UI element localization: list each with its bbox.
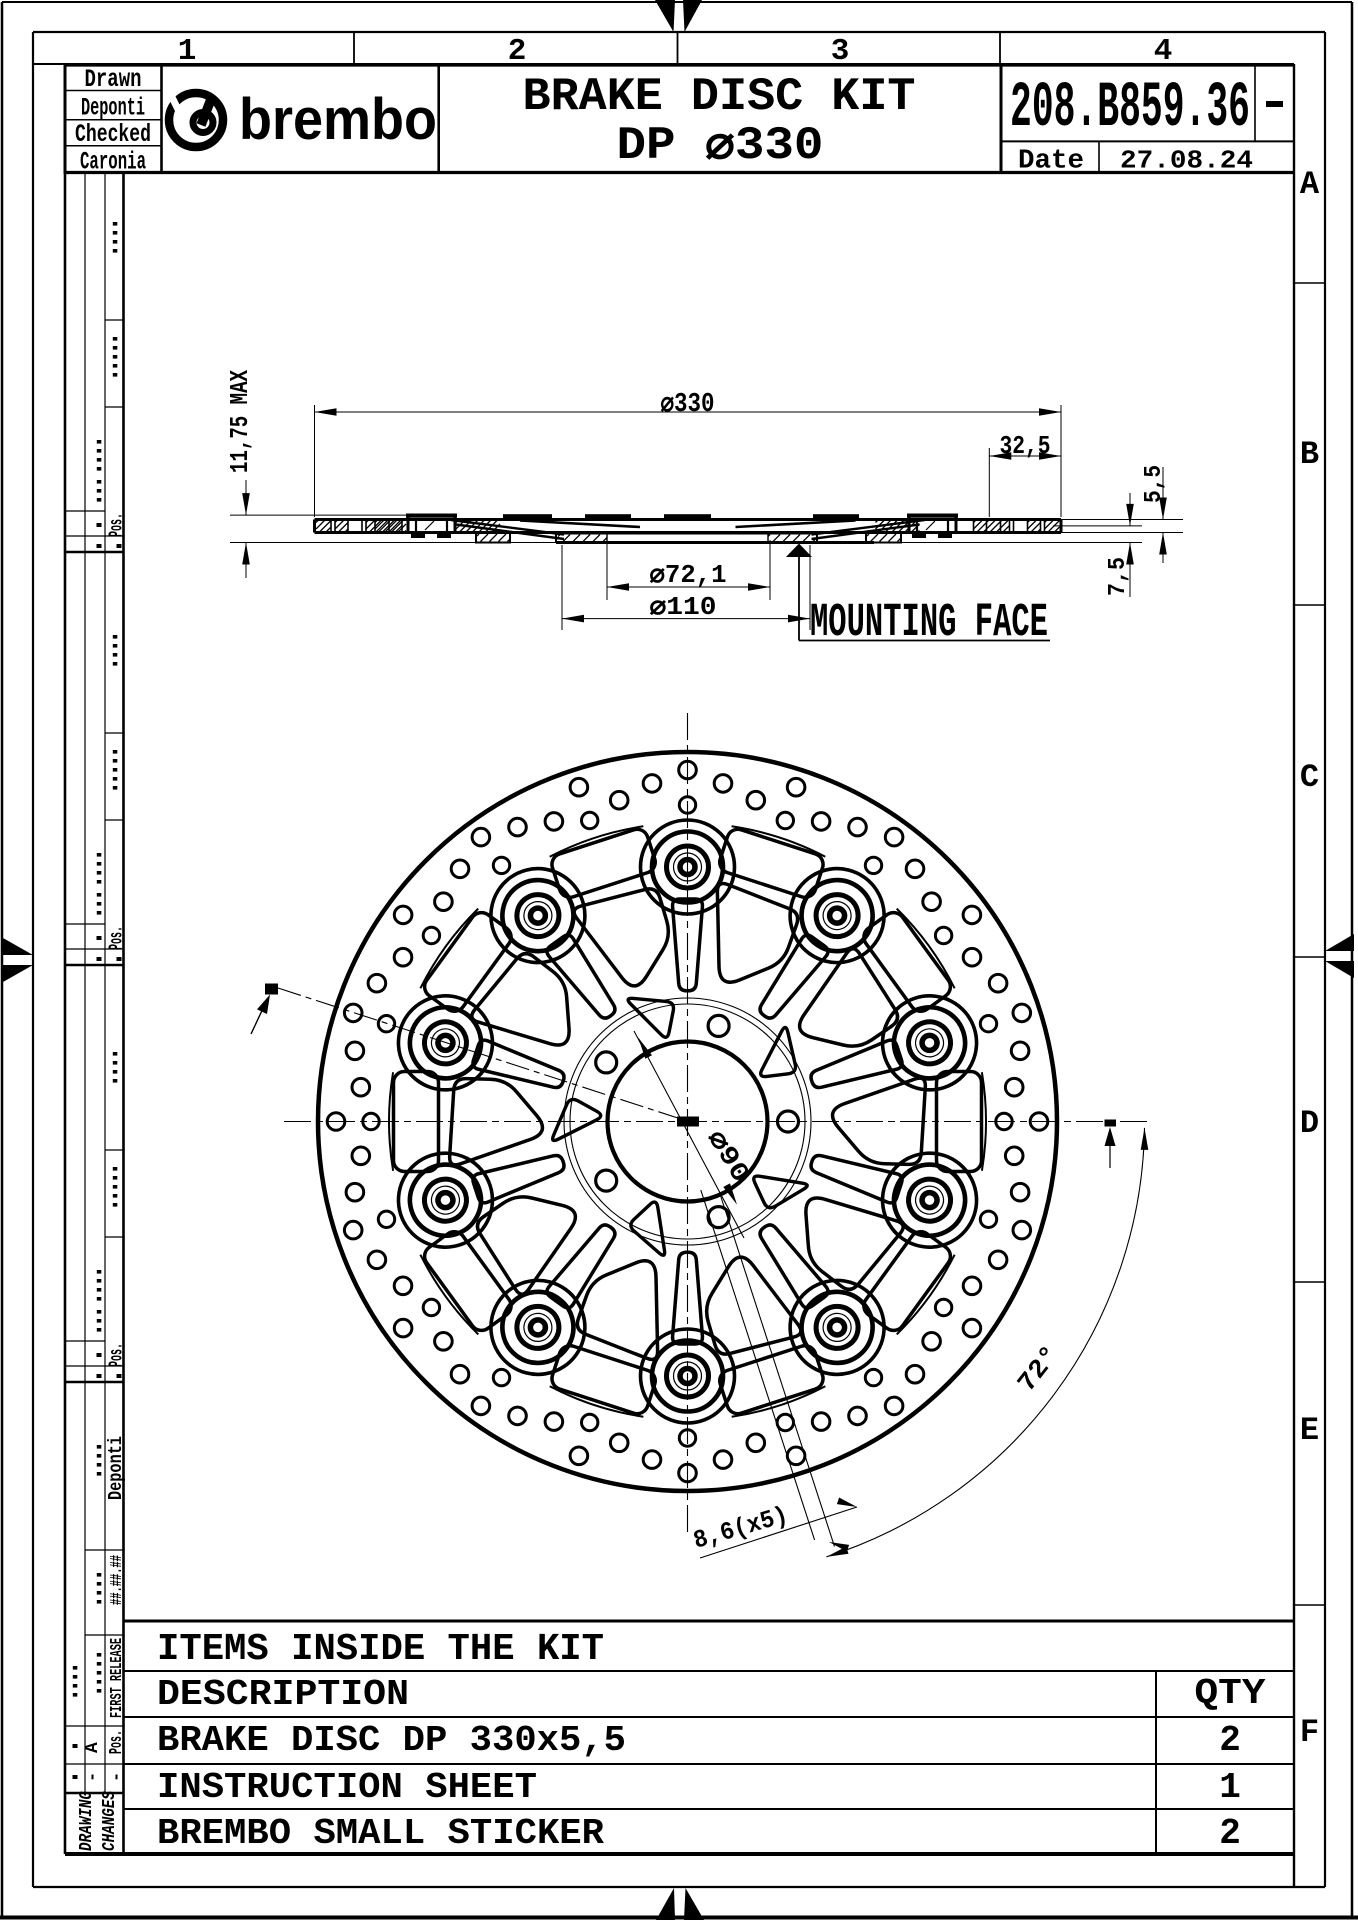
svg-text:2: 2 (1219, 1720, 1241, 1761)
svg-text:Deponti: Deponti (105, 1436, 127, 1500)
svg-text:⌀72,1: ⌀72,1 (650, 560, 727, 590)
svg-text:A: A (83, 1742, 103, 1753)
svg-text:Deponti: Deponti (81, 94, 145, 123)
svg-text:Pos.: Pos. (106, 926, 128, 950)
svg-text:Drawn: Drawn (85, 65, 142, 94)
svg-text:CHANGES: CHANGES (100, 1791, 120, 1851)
svg-text:DP ⌀330: DP ⌀330 (617, 120, 824, 172)
svg-text:2: 2 (1219, 1813, 1241, 1854)
svg-text:F: F (1300, 1714, 1319, 1751)
svg-text:⌀110: ⌀110 (650, 592, 717, 622)
svg-text:FIRST RELEASE: FIRST RELEASE (108, 1638, 127, 1718)
svg-text:Pos.: Pos. (106, 513, 128, 537)
svg-text:Pos.: Pos. (106, 1343, 128, 1367)
svg-text:BREMBO SMALL STICKER: BREMBO SMALL STICKER (157, 1813, 604, 1854)
svg-text:C: C (1300, 759, 1319, 796)
svg-text:-: - (108, 1772, 127, 1782)
svg-text:BRAKE DISC DP 330x5,5: BRAKE DISC DP 330x5,5 (157, 1720, 626, 1761)
svg-text:Checked: Checked (75, 120, 151, 149)
svg-text:DESCRIPTION: DESCRIPTION (157, 1674, 409, 1715)
svg-text:A: A (1300, 166, 1320, 203)
svg-text:⌀330: ⌀330 (661, 390, 715, 420)
svg-text:Caronia: Caronia (80, 148, 146, 177)
svg-text:11,75 MAX: 11,75 MAX (225, 370, 255, 473)
svg-text:E: E (1300, 1412, 1319, 1449)
svg-text:-: - (84, 1772, 103, 1782)
svg-text:##.##.##: ##.##.## (108, 1555, 127, 1605)
svg-text:BRAKE DISC KIT: BRAKE DISC KIT (523, 71, 916, 123)
svg-text:27.08.24: 27.08.24 (1120, 146, 1253, 176)
svg-text:B: B (1300, 436, 1319, 473)
svg-text:208.B859.36: 208.B859.36 (1010, 73, 1250, 145)
svg-text:Pos.: Pos. (107, 1730, 127, 1754)
svg-text:32,5: 32,5 (1000, 431, 1051, 461)
svg-text:D: D (1300, 1105, 1319, 1142)
svg-text:ITEMS INSIDE THE KIT: ITEMS INSIDE THE KIT (157, 1628, 604, 1671)
svg-text:1: 1 (1219, 1767, 1241, 1808)
svg-text:DRAWING: DRAWING (77, 1791, 97, 1851)
svg-text:INSTRUCTION SHEET: INSTRUCTION SHEET (157, 1767, 537, 1808)
svg-text:QTY: QTY (1195, 1673, 1266, 1714)
svg-text:Date: Date (1018, 147, 1084, 177)
svg-text:5,5: 5,5 (1141, 465, 1168, 503)
svg-text:brembo: brembo (239, 87, 437, 152)
svg-text:MOUNTING FACE: MOUNTING FACE (810, 597, 1048, 650)
